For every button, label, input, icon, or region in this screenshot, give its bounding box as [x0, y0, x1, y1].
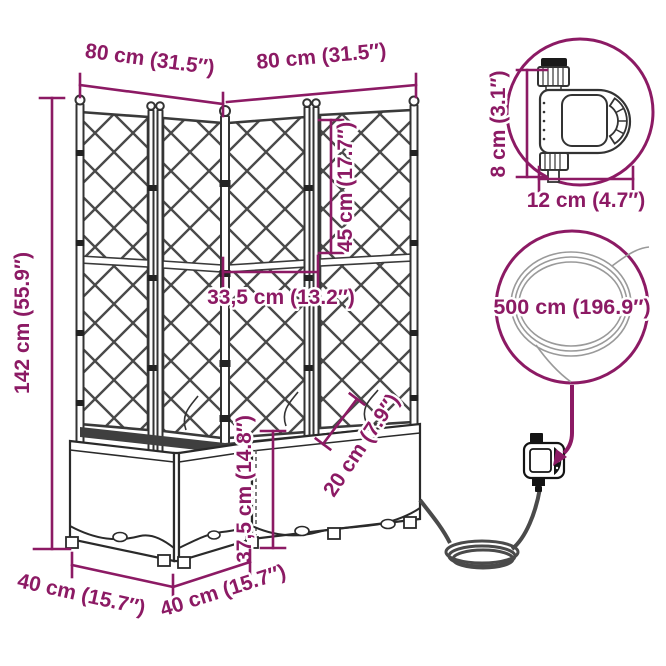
- planter-face-left-end: [70, 441, 174, 561]
- water-timer-large: 8 cm (3.1″) 12 cm (4.7″): [487, 39, 653, 212]
- dim-depth-left: 40 cm (15.7″): [15, 553, 173, 620]
- product-dimension-diagram: 8 cm (3.1″) 12 cm (4.7″) 500 cm (196.9″): [0, 0, 666, 666]
- dim-trellis-height-label: 45 cm (17.7″): [334, 122, 357, 252]
- garden-hose: [420, 488, 540, 568]
- trellis-panel-right-inner: [220, 105, 315, 450]
- hose-coil-detail: 500 cm (196.9″): [493, 231, 650, 383]
- pointer-arrow: [553, 385, 572, 466]
- dim-hose-length-label: 500 cm (196.9″): [493, 295, 650, 319]
- dim-timer-width: 12 cm (4.7″): [527, 167, 646, 212]
- dim-total-height: 142 cm (55.9″): [11, 98, 70, 549]
- dim-width-right: 80 cm (31.5″): [227, 39, 416, 102]
- trellis: [70, 96, 422, 465]
- dim-width-left-label: 80 cm (31.5″): [84, 40, 216, 80]
- trellis-panel-right-outer: [312, 100, 422, 440]
- dim-width-right-label: 80 cm (31.5″): [255, 39, 387, 74]
- dim-planter-height-label: 37,5 cm (14.8″): [233, 415, 256, 563]
- dim-timer-width-label: 12 cm (4.7″): [527, 189, 646, 212]
- diagram-canvas: 8 cm (3.1″) 12 cm (4.7″) 500 cm (196.9″): [0, 0, 666, 666]
- dim-timer-height-label: 8 cm (3.1″): [487, 71, 510, 178]
- dim-inner-span-label: 33,5 cm (13.2″): [207, 286, 355, 309]
- dim-total-height-label: 142 cm (55.9″): [11, 252, 34, 394]
